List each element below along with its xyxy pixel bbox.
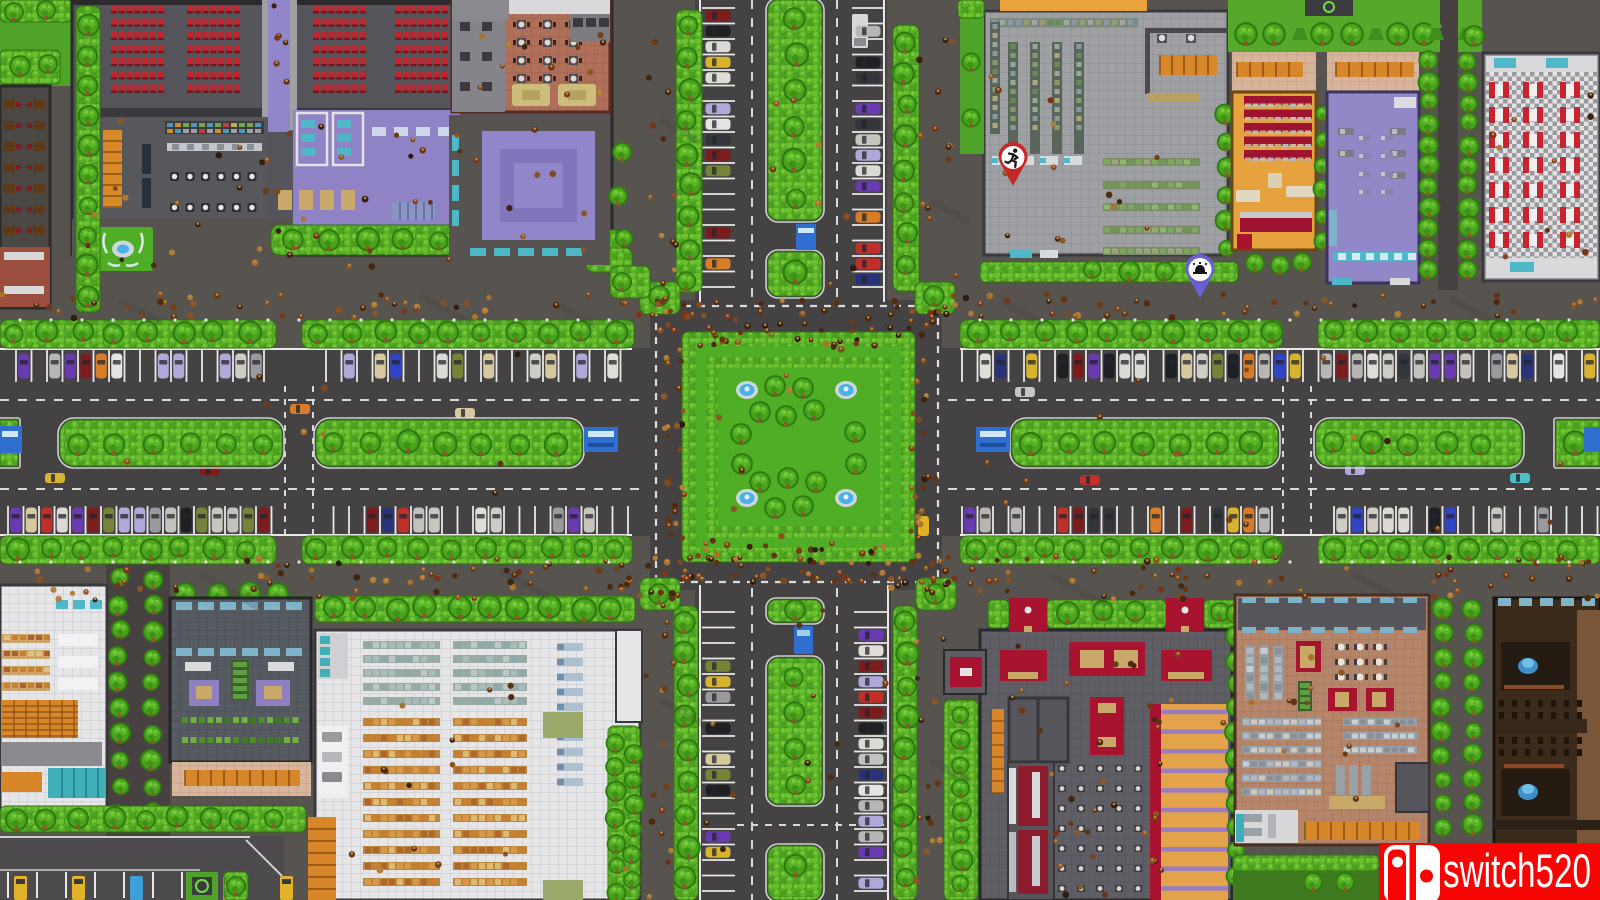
svg-text:switch520: switch520	[1443, 844, 1591, 897]
